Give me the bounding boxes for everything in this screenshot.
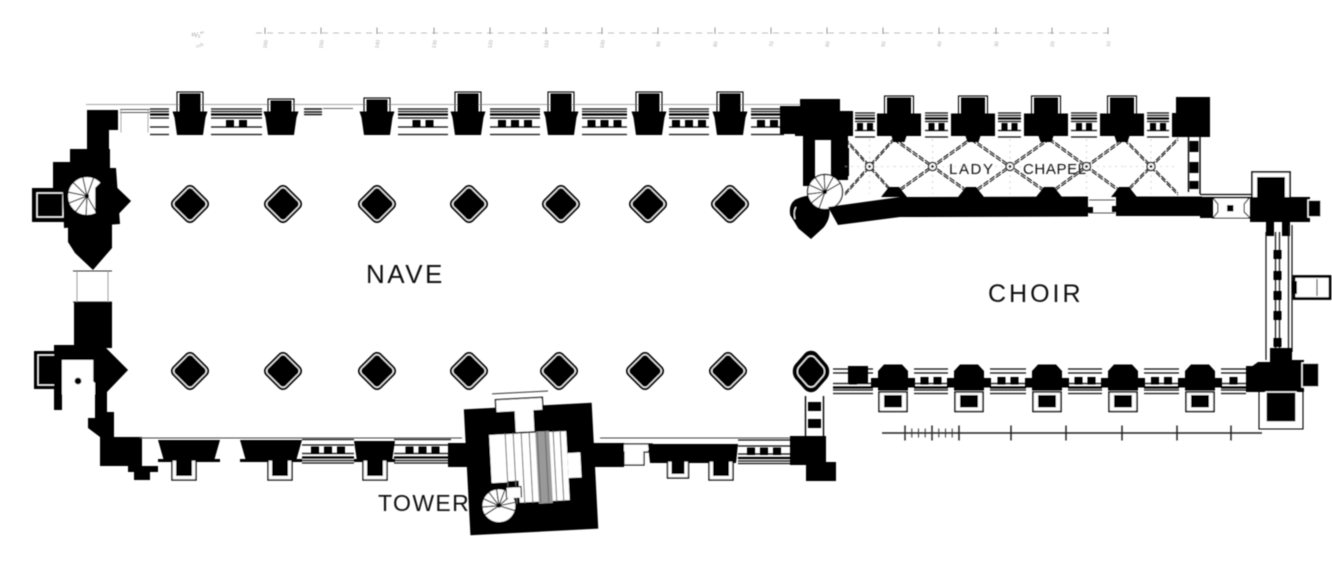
svg-text:₂₀ʲ›: ₂₀ʲ› — [195, 41, 203, 49]
svg-text:CHOIR: CHOIR — [988, 280, 1084, 308]
svg-text:LADY: LADY — [949, 161, 995, 178]
svg-text:NAVE: NAVE — [366, 259, 445, 289]
svg-text:CHAPEL: CHAPEL — [1023, 161, 1087, 178]
svg-text:TOWER: TOWER — [378, 490, 470, 516]
